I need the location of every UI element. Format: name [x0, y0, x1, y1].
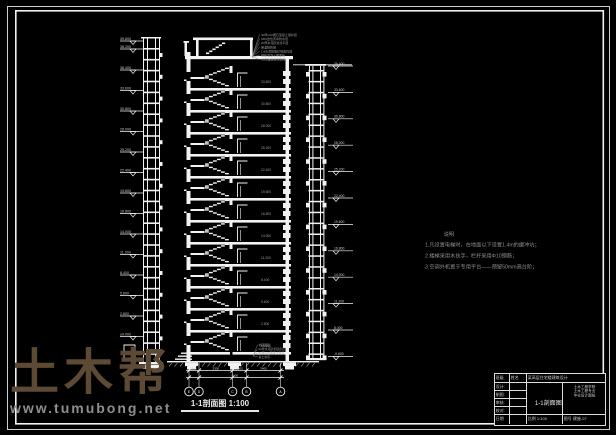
svg-text:-0.600: -0.600: [334, 352, 344, 356]
svg-text:D: D: [198, 390, 201, 394]
svg-text:25.200: 25.200: [261, 146, 271, 150]
svg-text:38.200: 38.200: [120, 45, 131, 49]
svg-text:28.000: 28.000: [334, 141, 344, 145]
svg-text:8.400: 8.400: [261, 278, 269, 282]
svg-text:2.800: 2.800: [261, 322, 269, 326]
svg-text:30.800: 30.800: [261, 102, 271, 106]
svg-text:±0.000: ±0.000: [120, 332, 131, 336]
svg-text:3300: 3300: [212, 366, 219, 370]
svg-text:11.200: 11.200: [120, 250, 131, 254]
tb-row-value: [510, 407, 527, 415]
tb-sheet-no: 图号 建施-07: [563, 415, 580, 421]
svg-text:16.800: 16.800: [334, 247, 344, 251]
svg-text:14.000: 14.000: [334, 273, 344, 277]
svg-text:11.200: 11.200: [334, 299, 344, 303]
right-wall-strip: [293, 64, 352, 360]
svg-text:22.400: 22.400: [120, 168, 131, 172]
tb-row-value: [510, 383, 527, 391]
tb-drawing-name-cell: 1-1剖面图: [527, 383, 563, 415]
svg-text:5.600: 5.600: [261, 300, 269, 304]
tb-top-c1: 班级: [495, 374, 501, 380]
svg-text:25.200: 25.200: [120, 148, 131, 152]
svg-text:28.000: 28.000: [120, 127, 131, 131]
svg-text:28.000: 28.000: [261, 124, 271, 128]
tb-org-cell: 土木工程学院土木工程专业毕业设计图纸: [563, 383, 605, 415]
svg-text:36.400: 36.400: [120, 66, 131, 70]
tb-project-title: 某高层住宅楼建筑设计: [527, 374, 558, 380]
tb-row-label: 制图: [495, 391, 510, 399]
svg-text:2.800: 2.800: [120, 312, 129, 316]
floor-callouts: 地砖面层20厚水泥砂浆结合层80厚C15混凝土垫层素土夯实: [253, 342, 285, 359]
svg-text:33.600: 33.600: [120, 86, 131, 90]
svg-text:5.600: 5.600: [120, 291, 129, 295]
svg-text:14.000: 14.000: [120, 230, 131, 234]
right-level-markers: 36.40033.60030.80028.00025.20022.40019.6…: [328, 62, 353, 360]
svg-text:22.400: 22.400: [334, 194, 344, 198]
tb-row-label: 校对: [495, 407, 510, 415]
svg-text:14.000: 14.000: [261, 234, 271, 238]
tb-top-c2: 姓名: [510, 374, 516, 380]
watermark-url: www.tumubong.net: [10, 400, 172, 416]
svg-text:20厚板底抹灰刷白: 20厚板底抹灰刷白: [261, 57, 285, 62]
svg-text:30.800: 30.800: [120, 107, 131, 111]
left-level-markers: 39.60038.20036.40033.60030.80028.00025.2…: [120, 37, 143, 340]
tb-row-label: 设计: [495, 383, 510, 391]
axis-bubbles: EDCBA: [185, 387, 285, 396]
tb-scale: 比例 1:100: [527, 415, 541, 421]
drawing-title: 1-1剖面图 1:100: [181, 398, 259, 412]
svg-text:1400: 1400: [236, 366, 243, 370]
notes-title: 说明: [444, 229, 540, 240]
svg-text:22.400: 22.400: [261, 168, 271, 172]
main-section: 33.60030.80028.00025.20022.40019.60016.8…: [184, 38, 294, 363]
title-block: 班级 姓名 某高层住宅楼建筑设计 设计制图审核校对 1-1剖面图 土木工程学院土…: [494, 373, 606, 426]
note-line-3: 3.空调外机置于专用平台——预留50mm高台阶；: [425, 262, 540, 273]
svg-text:16.800: 16.800: [261, 212, 271, 216]
notes-block: 说明 1.凡设置电梯时，在地面以下设置1.4m的缓冲坑； 2.楼梯采用木扶手，栏…: [425, 229, 616, 313]
svg-text:33.600: 33.600: [261, 80, 271, 84]
svg-text:25.200: 25.200: [334, 167, 344, 171]
tb-org-lines: 土木工程学院土木工程专业毕业设计图纸: [563, 383, 605, 398]
svg-text:B: B: [245, 390, 248, 394]
svg-text:3400: 3400: [260, 366, 267, 370]
svg-text:19.600: 19.600: [120, 189, 131, 193]
svg-text:39.600: 39.600: [120, 37, 131, 41]
svg-text:36.400: 36.400: [334, 62, 344, 66]
svg-text:19.600: 19.600: [334, 220, 344, 224]
svg-text:19.600: 19.600: [261, 190, 271, 194]
tb-row-value: [510, 391, 527, 399]
svg-text:9100: 9100: [231, 373, 238, 377]
svg-text:33.600: 33.600: [334, 88, 344, 92]
tb-row-value: [510, 399, 527, 407]
svg-text:16.800: 16.800: [120, 209, 131, 213]
note-line-1: 1.凡设置电梯时，在地面以下设置1.4m的缓冲坑；: [425, 240, 540, 251]
svg-text:素土夯实: 素土夯实: [259, 354, 271, 359]
svg-text:C: C: [231, 390, 234, 394]
svg-text:8.400: 8.400: [334, 326, 343, 330]
cad-drawing-sheet: { "colors": { "line": "#f2f2f2", "dim_te…: [0, 0, 616, 435]
watermark-brand: 土木帮: [10, 349, 172, 398]
tb-row-label: 审核: [495, 399, 510, 407]
note-line-2: 2.楼梯采用木扶手，栏杆采用Φ10钢筋；: [425, 251, 540, 262]
svg-text:A: A: [279, 390, 282, 394]
tb-bottom-c1: 日期: [495, 415, 501, 421]
tb-drawing-name: 1-1剖面图: [535, 399, 554, 408]
svg-text:11.200: 11.200: [261, 256, 271, 260]
svg-text:8.400: 8.400: [120, 271, 129, 275]
svg-text:E: E: [188, 390, 191, 394]
watermark: 土木帮 www.tumubong.net: [10, 349, 172, 416]
svg-text:900: 900: [191, 366, 196, 370]
svg-text:30.800: 30.800: [334, 115, 344, 119]
